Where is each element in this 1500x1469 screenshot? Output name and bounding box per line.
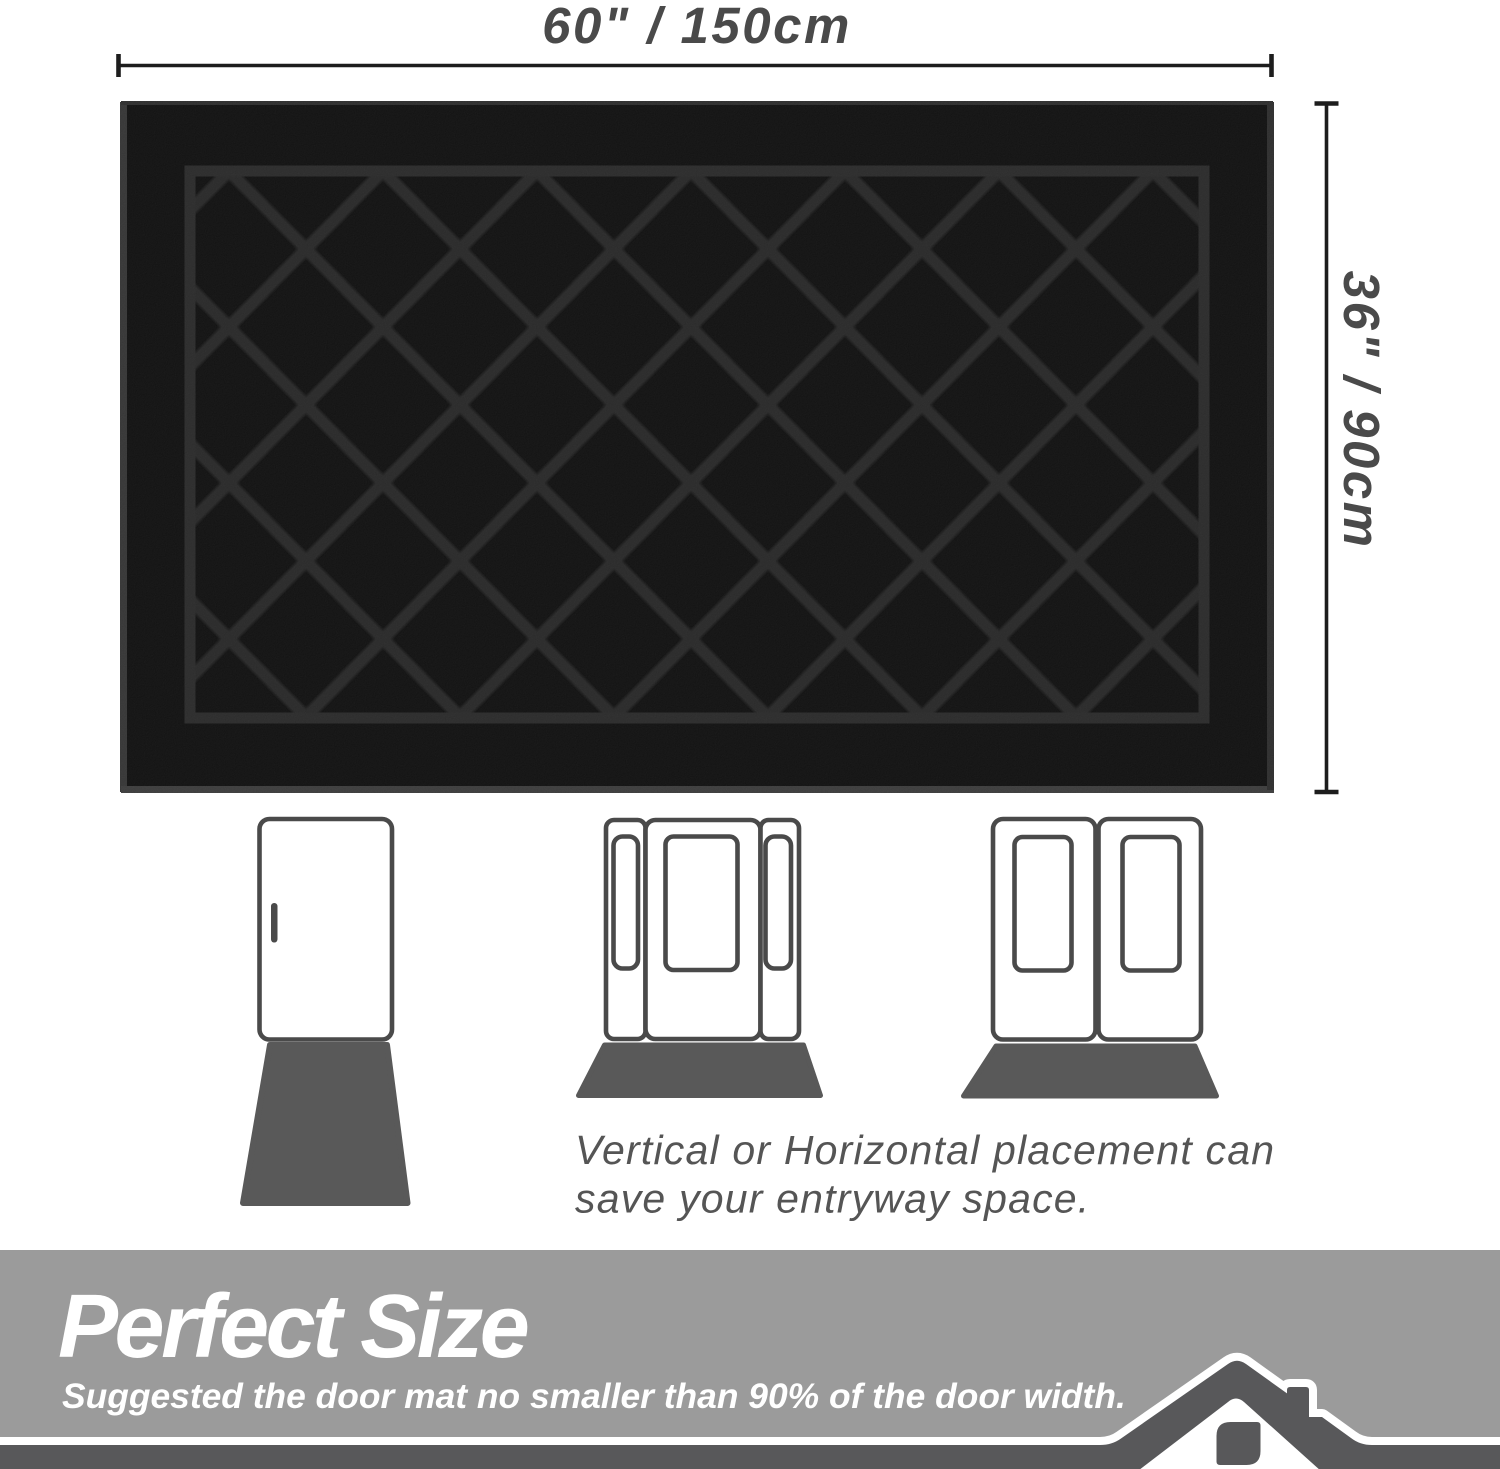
svg-text:Vertical or Horizontal placeme: Vertical or Horizontal placement can — [575, 1127, 1275, 1173]
svg-text:60" / 150cm: 60" / 150cm — [542, 0, 852, 54]
svg-text:Suggested the door mat no smal: Suggested the door mat no smaller than 9… — [62, 1376, 1126, 1416]
svg-text:save your entryway space.: save your entryway space. — [575, 1176, 1090, 1222]
svg-text:36" / 90cm: 36" / 90cm — [1333, 271, 1390, 550]
svg-text:Perfect Size: Perfect Size — [58, 1277, 528, 1377]
